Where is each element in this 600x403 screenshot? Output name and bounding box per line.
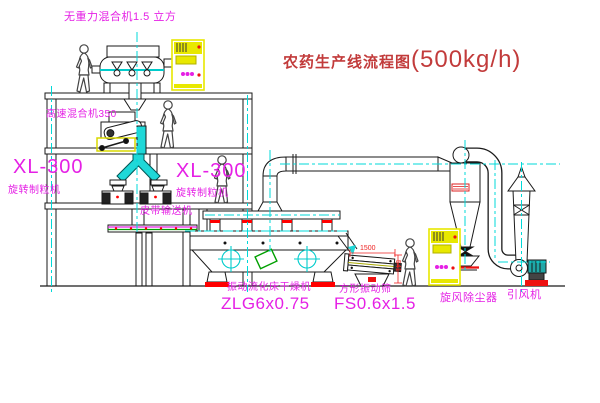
fluid-bed-dryer-machine (190, 211, 348, 287)
label-dryer-name: 振动流化床干燥机 (227, 283, 311, 293)
gravity-mixer-machine (92, 46, 174, 110)
label-fan: 引风机 (507, 290, 542, 301)
person-figure (77, 45, 93, 92)
label-granulator-left-model: XL-300 (13, 157, 84, 177)
control-cabinet-top (172, 40, 204, 90)
exhaust-duct (258, 154, 452, 211)
dimension-sieve-length: 1500 (360, 245, 376, 252)
label-belt-conveyor: 皮带输送机 (140, 207, 193, 217)
page-title: 农药生产线流程图(500kg/h) (283, 48, 521, 72)
induced-draft-fan-machine (511, 260, 549, 287)
label-sieve-model: FS0.6x1.5 (334, 295, 416, 312)
label-granulator-left-name: 旋转制粒机 (8, 186, 61, 196)
label-high-speed-mixer: 高速混合机350 (46, 110, 117, 120)
person-figure (403, 239, 419, 286)
label-granulator-right-name: 旋转制粒机 (176, 189, 229, 199)
title-capacity: (500kg/h) (411, 46, 521, 73)
label-granulator-right-model: XL-300 (176, 161, 247, 181)
label-cyclone: 旋风除尘器 (440, 293, 498, 304)
cad-flow-diagram: 无重力混合机1.5 立方 农药生产线流程图(500kg/h) 高速混合机350 … (0, 0, 600, 403)
label-dryer-model: ZLG6x0.75 (221, 295, 310, 312)
granulator-left-machine (102, 186, 133, 204)
granulator-right-machine (140, 186, 171, 204)
control-cabinet-right (429, 229, 460, 285)
person-figure (161, 101, 177, 148)
dimension-sieve-height: 541 (394, 260, 401, 272)
label-gravity-mixer: 无重力混合机1.5 立方 (64, 12, 176, 23)
y-chute (110, 154, 167, 185)
title-chinese: 农药生产线流程图 (283, 54, 411, 71)
